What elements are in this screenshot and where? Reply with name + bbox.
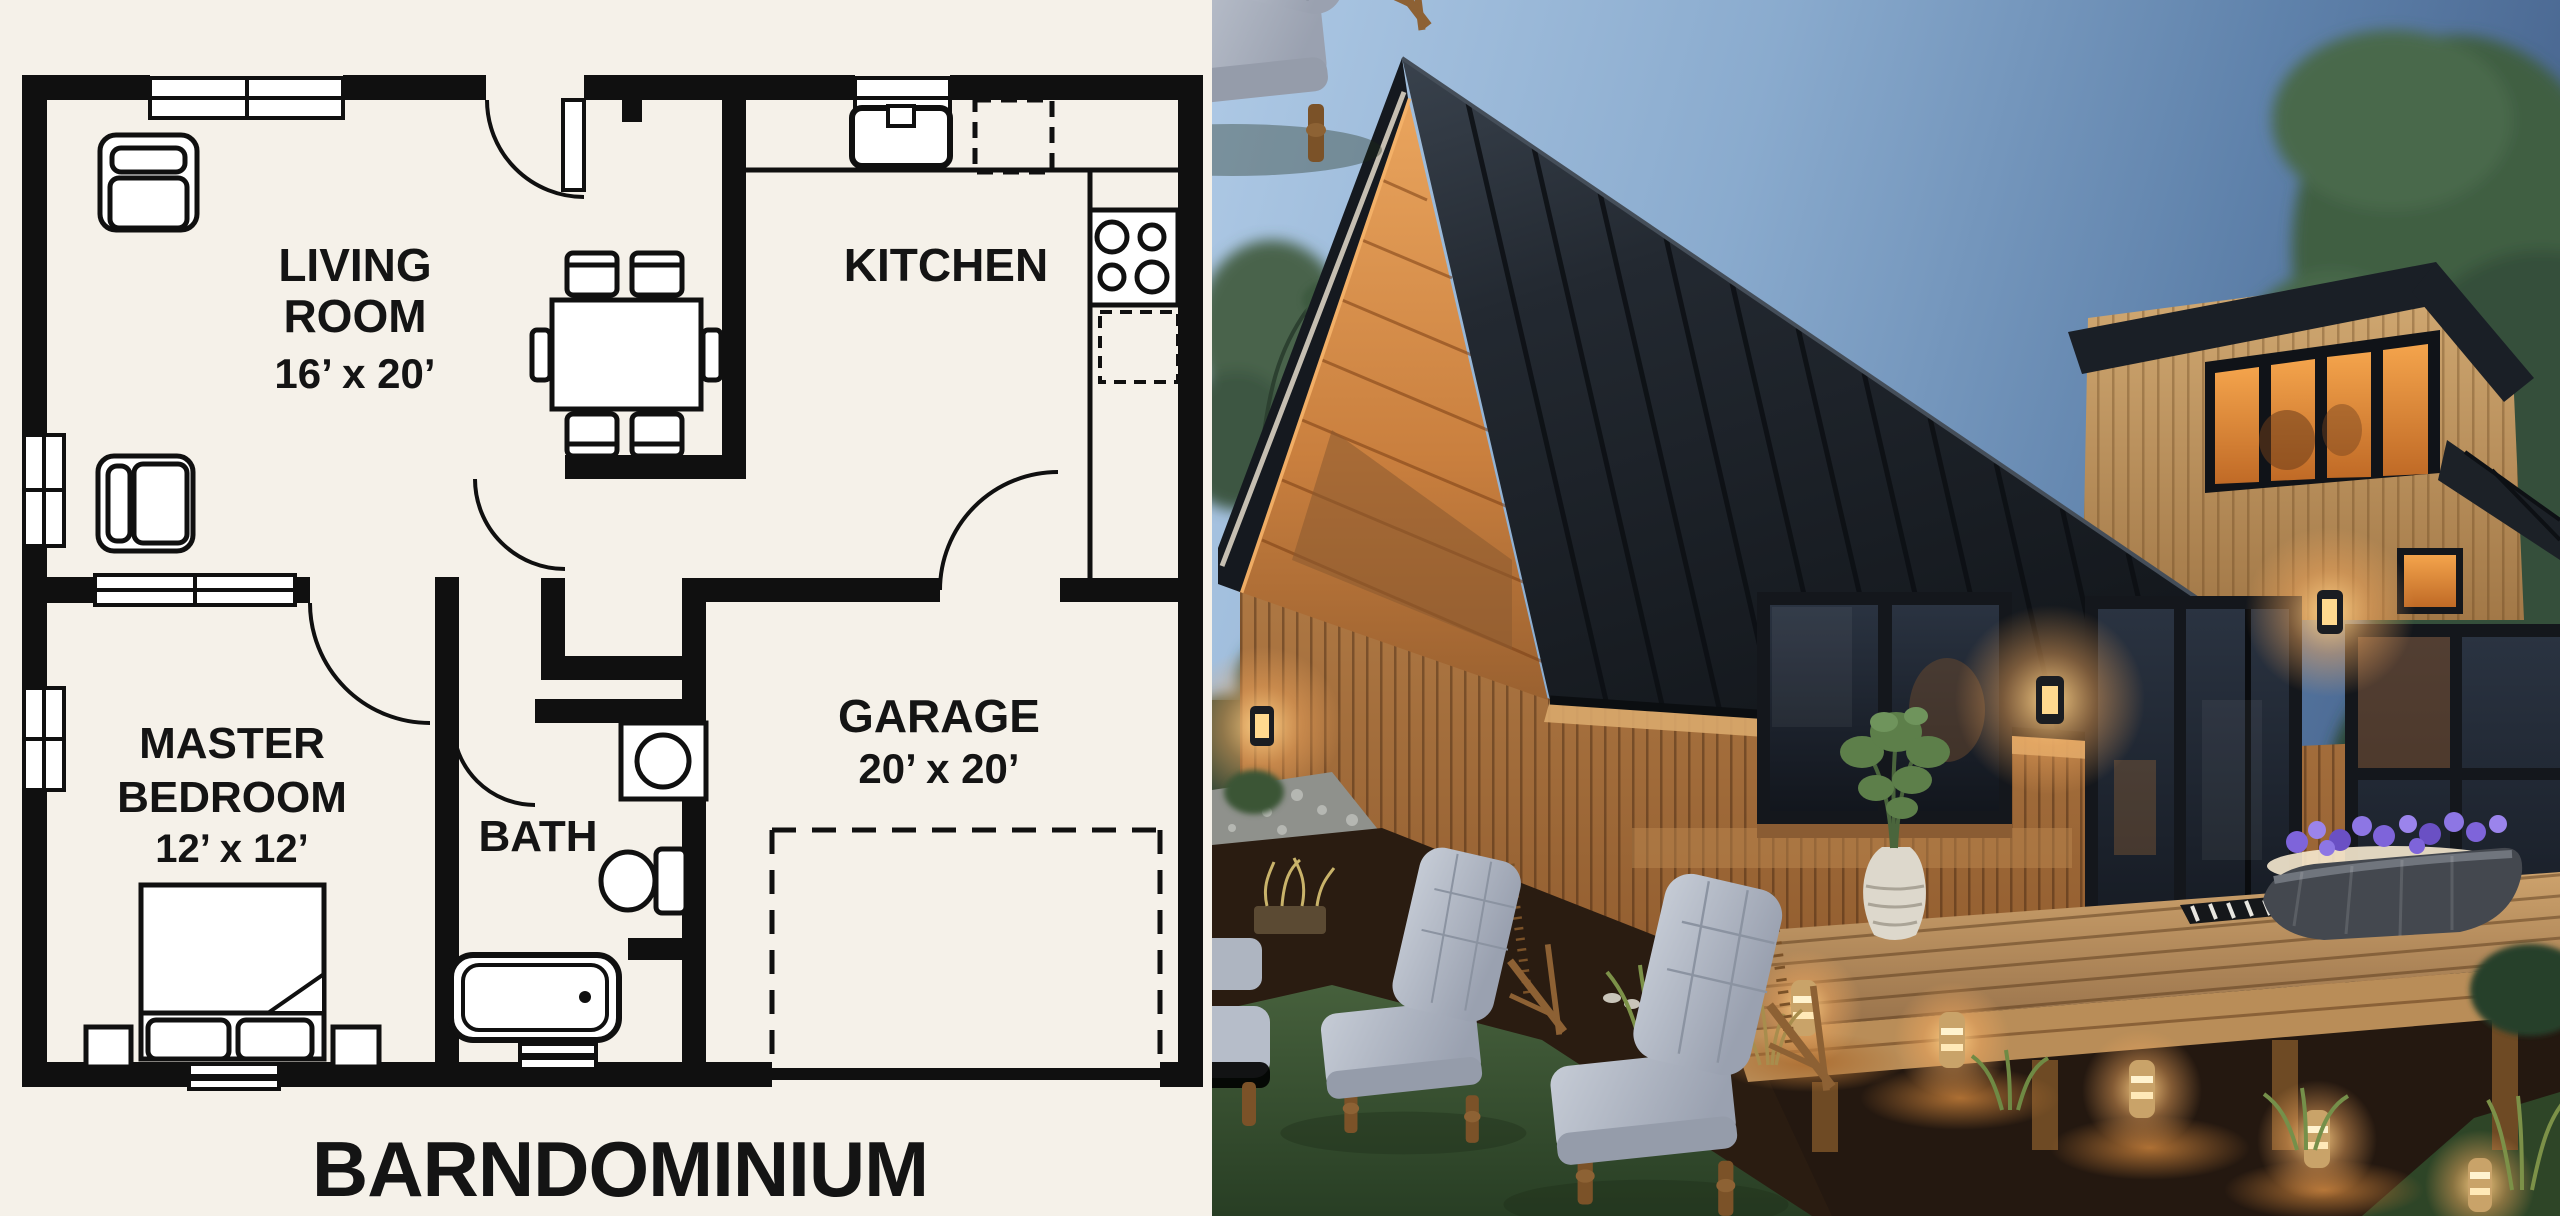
tub-mat-b — [520, 1058, 596, 1069]
exterior-photo-panel — [1212, 0, 2560, 1216]
wall-kitchen-bottom-right — [1060, 578, 1203, 602]
wall-living-kitchen — [722, 100, 746, 457]
kitchen-label: KITCHEN — [844, 239, 1048, 291]
living-room-label-1: LIVING — [278, 239, 431, 291]
master-bedroom-label-2: BEDROOM — [117, 773, 347, 822]
sconce-mid — [1955, 605, 2145, 795]
plan-title: BARNDOMINIUM — [312, 1125, 928, 1213]
wall-bedroom-top-a — [47, 577, 95, 603]
floor-plan-drawing: LIVING ROOM 16’ x 20’ KITCHEN MASTER BED… — [0, 0, 1212, 1216]
clerestory-plant-silhouette — [2259, 410, 2315, 470]
wall-entry-stub — [622, 100, 642, 122]
wall-bath-top-b — [535, 699, 682, 723]
bedroom-window-icon — [95, 575, 295, 605]
wall-hall-top — [565, 455, 746, 479]
shrub-left — [1224, 770, 1284, 814]
big-window-sill — [1757, 824, 2012, 838]
master-bedroom-label-1: MASTER — [139, 719, 325, 768]
wall-bedroom-top-b — [295, 577, 310, 603]
wall-closet-bottom — [541, 656, 706, 680]
tub-drain — [579, 991, 591, 1003]
sconce-right — [2245, 527, 2415, 697]
wall-garage-left — [682, 578, 706, 1087]
bed-bench-a — [189, 1064, 279, 1076]
wall-bedroom-bath-link — [435, 577, 459, 699]
bed-bench-b — [189, 1079, 279, 1089]
bath-label: BATH — [479, 812, 598, 861]
garage-door-line — [772, 1068, 1160, 1080]
master-bedroom-dims: 12’ x 12’ — [155, 827, 308, 871]
pillow-right — [238, 1020, 312, 1059]
wall-kitchen-bottom-left — [682, 578, 940, 602]
floor-plan-panel: LIVING ROOM 16’ x 20’ KITCHEN MASTER BED… — [0, 0, 1212, 1216]
sink-faucet-notch — [888, 106, 914, 126]
entry-door-leaf — [563, 100, 584, 190]
wall-tub-stub — [628, 938, 706, 960]
pillow-left — [148, 1020, 229, 1059]
toilet-tank-icon — [656, 849, 686, 913]
planter-trough — [1254, 906, 1326, 934]
toilet-bowl-icon — [601, 852, 655, 910]
nightstand-right — [333, 1027, 379, 1067]
interior-light-hint — [2114, 760, 2156, 855]
screenshot-root: LIVING ROOM 16’ x 20’ KITCHEN MASTER BED… — [0, 0, 2560, 1216]
exterior-photo — [1212, 0, 2560, 1216]
garage-dims: 20’ x 20’ — [858, 745, 1019, 792]
tub-mat-a — [520, 1044, 596, 1055]
living-room-label-2: ROOM — [283, 290, 426, 342]
dining-table-icon — [552, 300, 701, 409]
nightstand-left — [86, 1027, 131, 1067]
garage-label: GARAGE — [838, 690, 1040, 742]
living-room-dims: 16’ x 20’ — [274, 350, 435, 397]
